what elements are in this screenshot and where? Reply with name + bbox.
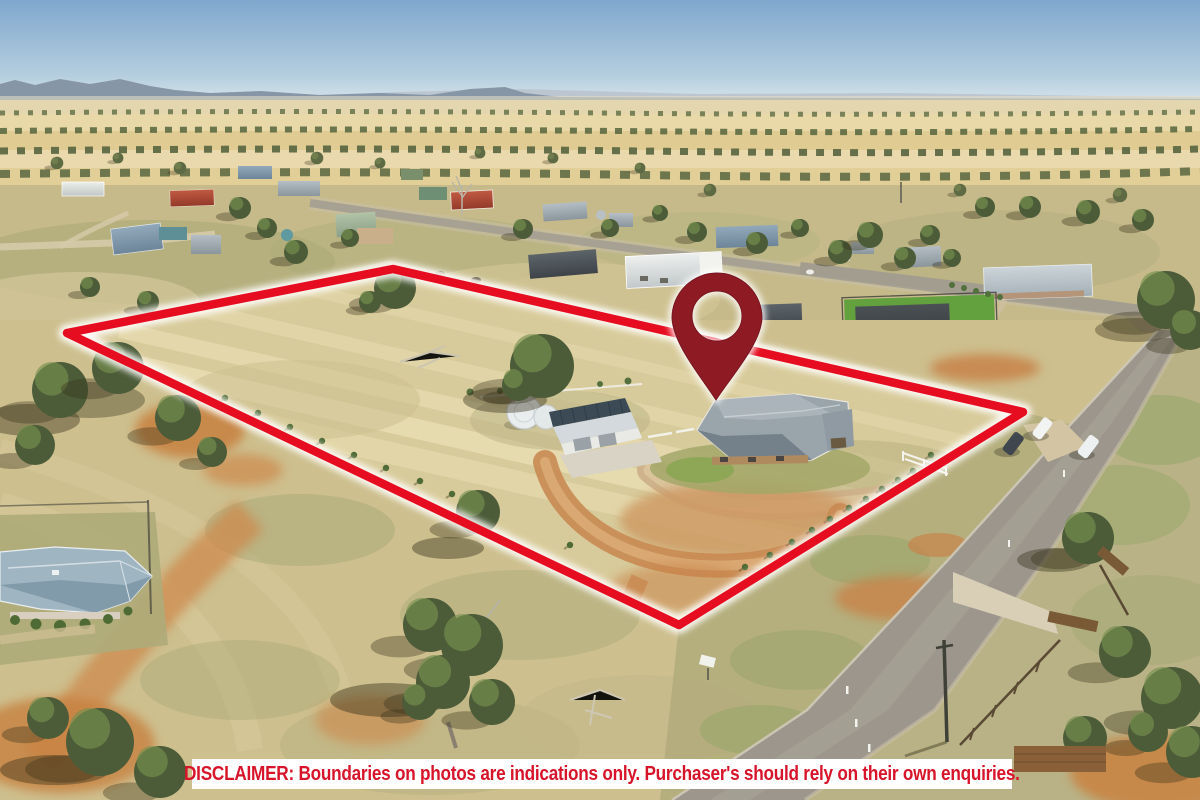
disclaimer-banner: DISCLAIMER: Boundaries on photos are ind… <box>192 759 1012 789</box>
satellite-dish <box>52 570 59 575</box>
bottom-left-house <box>0 500 168 665</box>
house <box>278 181 320 196</box>
grey-roof-house <box>542 201 587 221</box>
white-horse <box>806 270 814 275</box>
garage-door <box>831 437 847 448</box>
red-roof-house <box>170 189 215 207</box>
white-shed <box>62 182 104 196</box>
tan-house <box>357 228 393 244</box>
grey-shed <box>191 235 221 254</box>
landscape-scene <box>0 0 1200 800</box>
house <box>238 166 272 179</box>
disclaimer-text: DISCLAIMER: Boundaries on photos are ind… <box>184 763 1020 786</box>
retaining-wall <box>1014 746 1106 772</box>
round-tank <box>596 210 606 220</box>
green-shed <box>401 169 423 180</box>
red-hip-roof-house <box>451 190 494 210</box>
green-roof-shed <box>419 187 447 200</box>
teal-shed <box>159 227 187 240</box>
water-tank-small <box>281 229 293 241</box>
blue-roof-house <box>111 223 164 255</box>
aerial-property-photo: DISCLAIMER: Boundaries on photos are ind… <box>0 0 1200 800</box>
